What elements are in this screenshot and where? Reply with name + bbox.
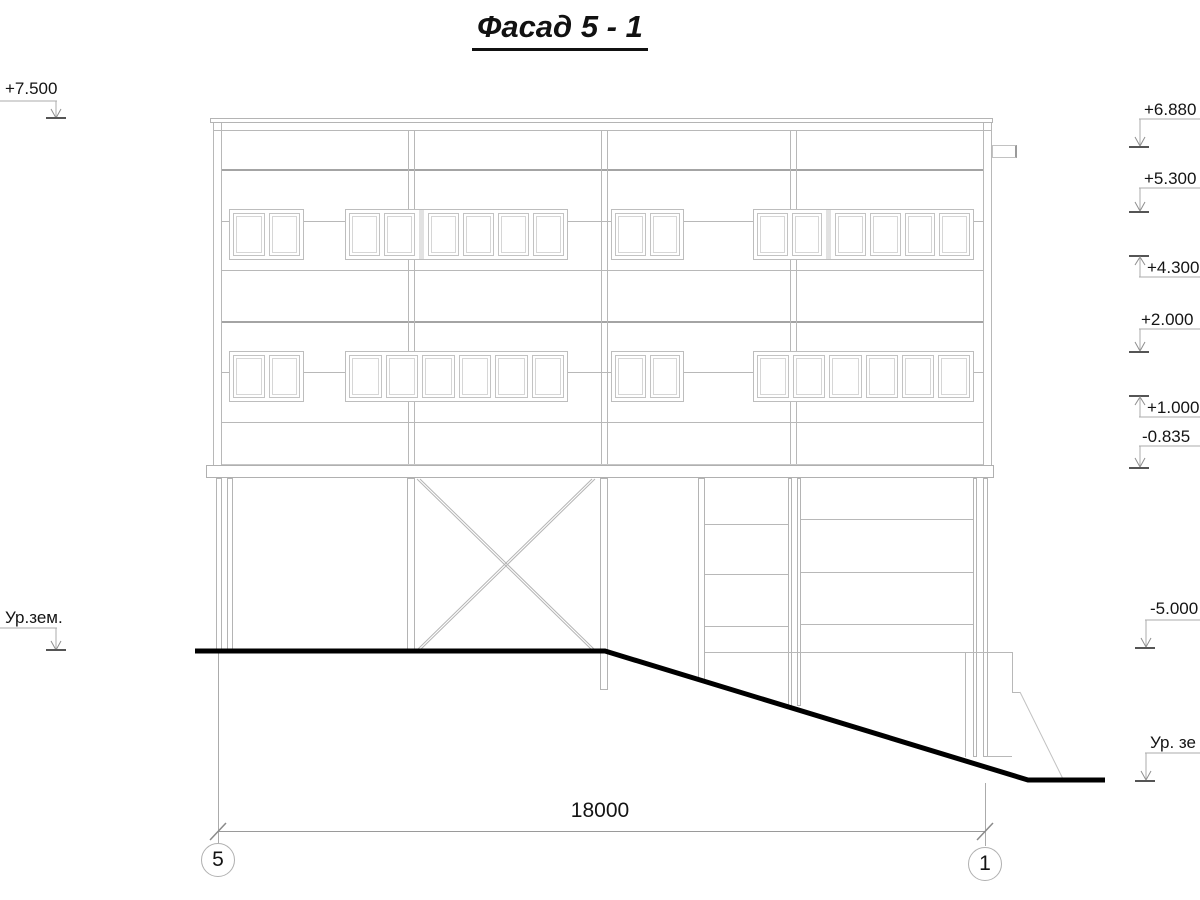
window-pane <box>269 355 301 398</box>
mullion <box>790 401 791 464</box>
window-2pane <box>229 209 304 260</box>
window-pane <box>615 213 646 256</box>
drawing-title-text: Фасад 5 - 1 <box>472 10 648 51</box>
mullion <box>414 130 415 209</box>
mullion <box>414 259 415 351</box>
column <box>973 478 977 757</box>
window-strip-6pane <box>345 209 568 260</box>
window-pane <box>939 213 970 256</box>
right-wall-edge-inner <box>983 123 984 465</box>
buttress-slope <box>1020 692 1063 779</box>
window-pane <box>835 213 866 256</box>
window-strip-6pane <box>345 351 568 402</box>
elevation-label-4300: +4.300 <box>1147 259 1199 276</box>
window-pane <box>428 213 459 256</box>
elevation-label-7500: +7.500 <box>5 80 57 97</box>
ground-level-label-right: Ур. зе <box>1150 734 1196 751</box>
window-pane <box>615 355 646 398</box>
parapet-coping <box>210 118 993 123</box>
linework-overlay <box>0 0 1200 900</box>
panel-joint-2 <box>222 422 983 423</box>
cross-bracing <box>417 479 595 650</box>
stair-landing-line <box>705 524 788 525</box>
window-pane <box>349 213 380 256</box>
ground-line <box>195 651 1105 780</box>
window-pane <box>495 355 528 398</box>
window-strip-6pane <box>753 209 974 260</box>
floor-band-line-2 <box>222 321 983 323</box>
drawing-title: Фасад 5 - 1 <box>420 10 700 51</box>
sill-line <box>974 221 983 222</box>
sill-line <box>303 372 345 373</box>
mullion <box>601 130 602 464</box>
column <box>983 478 988 757</box>
stair-landing-line <box>705 626 788 627</box>
stair-landing-line <box>705 574 788 575</box>
window-2pane <box>611 209 684 260</box>
roof-slab-line <box>213 130 991 131</box>
window-pane <box>532 355 565 398</box>
sill-line <box>974 372 983 373</box>
window-pane <box>938 355 970 398</box>
mullion <box>796 130 797 209</box>
foundation-bottom <box>987 756 1012 757</box>
sill-line <box>568 372 611 373</box>
column <box>407 478 415 651</box>
column <box>788 478 792 706</box>
floor-band-line-1 <box>222 169 983 171</box>
window-pane <box>233 213 265 256</box>
window-pane <box>463 213 494 256</box>
window-pane <box>533 213 564 256</box>
mullion <box>796 401 797 464</box>
window-pane <box>757 213 788 256</box>
mullion-pass <box>419 210 424 259</box>
column <box>698 478 705 680</box>
window-pane <box>792 213 823 256</box>
left-wall-edge-inner <box>221 123 222 465</box>
window-strip-6pane <box>753 351 974 402</box>
elevation-label-2000: +2.000 <box>1141 311 1193 328</box>
sill-line <box>222 221 229 222</box>
window-pane <box>793 355 825 398</box>
mullion <box>414 401 415 464</box>
stair-landing-line <box>801 572 973 573</box>
column <box>227 478 233 651</box>
sill-line <box>684 221 753 222</box>
mullion <box>796 259 797 351</box>
elevation-label-5300: +5.300 <box>1144 170 1196 187</box>
sill-line <box>303 221 345 222</box>
panel-joint-1 <box>222 270 983 271</box>
column <box>216 478 222 651</box>
window-2pane <box>229 351 304 402</box>
foundation-wall-edge <box>965 652 966 757</box>
window-pane <box>905 213 936 256</box>
column <box>600 478 608 690</box>
window-pane <box>386 355 419 398</box>
elevation-label-6880: +6.880 <box>1144 101 1196 118</box>
facade-drawing-sheet: Фасад 5 - 1 <box>0 0 1200 900</box>
elevation-label-m5000: -5.000 <box>1150 600 1198 617</box>
window-pane <box>650 355 681 398</box>
window-pane <box>349 355 382 398</box>
grid-axis-bubble-5: 5 <box>201 843 235 877</box>
window-pane <box>866 355 898 398</box>
dimension-line <box>218 831 985 832</box>
grid-axis-label: 5 <box>212 848 224 871</box>
foundation-wall-edge <box>1012 652 1013 692</box>
sill-line <box>222 372 229 373</box>
left-wall-edge <box>213 123 214 465</box>
window-pane <box>269 213 301 256</box>
sill-line <box>568 221 611 222</box>
window-pane <box>498 213 529 256</box>
right-wall-edge <box>991 123 992 465</box>
window-pane <box>422 355 455 398</box>
dimension-value: 18000 <box>560 800 640 821</box>
mullion <box>790 130 791 209</box>
ground-level-label-left: Ур.зем. <box>5 609 63 626</box>
column <box>797 478 801 706</box>
sill-line <box>684 372 753 373</box>
mullion <box>408 259 409 351</box>
window-2pane <box>611 351 684 402</box>
window-pane <box>902 355 934 398</box>
window-pane <box>757 355 789 398</box>
grid-axis-label: 1 <box>979 852 991 875</box>
mullion <box>408 130 409 209</box>
window-pane <box>870 213 901 256</box>
elevation-label-m0835: -0.835 <box>1142 428 1190 445</box>
roof-scupper <box>992 145 1017 158</box>
grid-axis-bubble-1: 1 <box>968 847 1002 881</box>
window-pane <box>829 355 861 398</box>
grid-extension-line-1 <box>985 783 986 846</box>
stair-landing-line <box>801 624 973 625</box>
grid-extension-line-5 <box>218 653 219 843</box>
mullion-pass <box>826 210 831 259</box>
elevation-label-1000: +1.000 <box>1147 399 1199 416</box>
window-pane <box>650 213 681 256</box>
stair-landing-line <box>801 519 973 520</box>
ground-floor-slab <box>206 465 994 478</box>
mullion <box>607 130 608 464</box>
mullion <box>790 259 791 351</box>
window-pane <box>384 213 415 256</box>
window-pane <box>233 355 265 398</box>
mullion <box>408 401 409 464</box>
window-pane <box>459 355 492 398</box>
buttress-top <box>1012 692 1020 693</box>
